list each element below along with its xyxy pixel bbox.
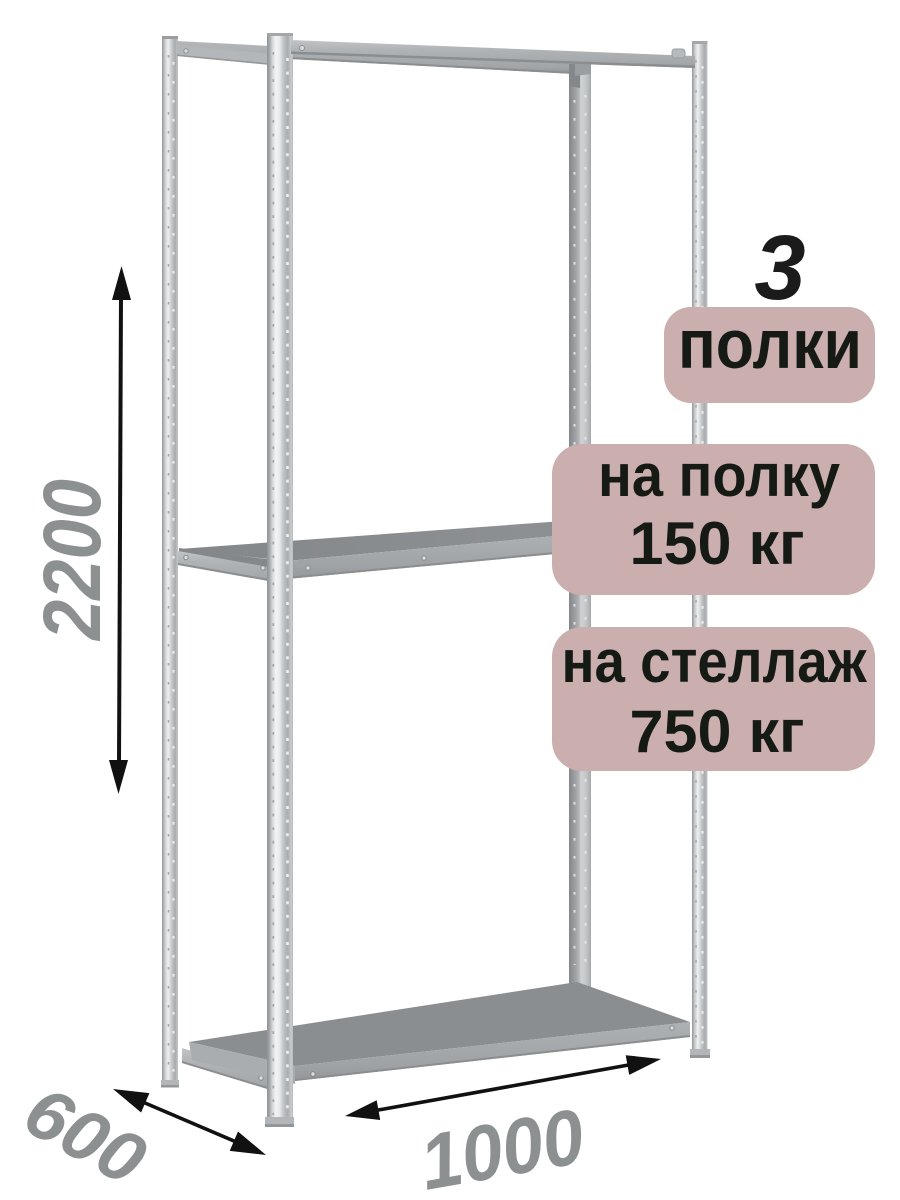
svg-text:750 кг: 750 кг bbox=[630, 698, 805, 765]
svg-text:полки: полки bbox=[678, 305, 862, 383]
svg-text:600: 600 bbox=[11, 1071, 158, 1200]
svg-text:2200: 2200 bbox=[27, 479, 118, 642]
svg-text:1000: 1000 bbox=[414, 1092, 591, 1200]
svg-text:на стеллаж: на стеллаж bbox=[562, 628, 868, 695]
svg-text:на полку: на полку bbox=[598, 442, 841, 509]
svg-text:150 кг: 150 кг bbox=[630, 510, 805, 577]
svg-text:3: 3 bbox=[754, 217, 805, 319]
